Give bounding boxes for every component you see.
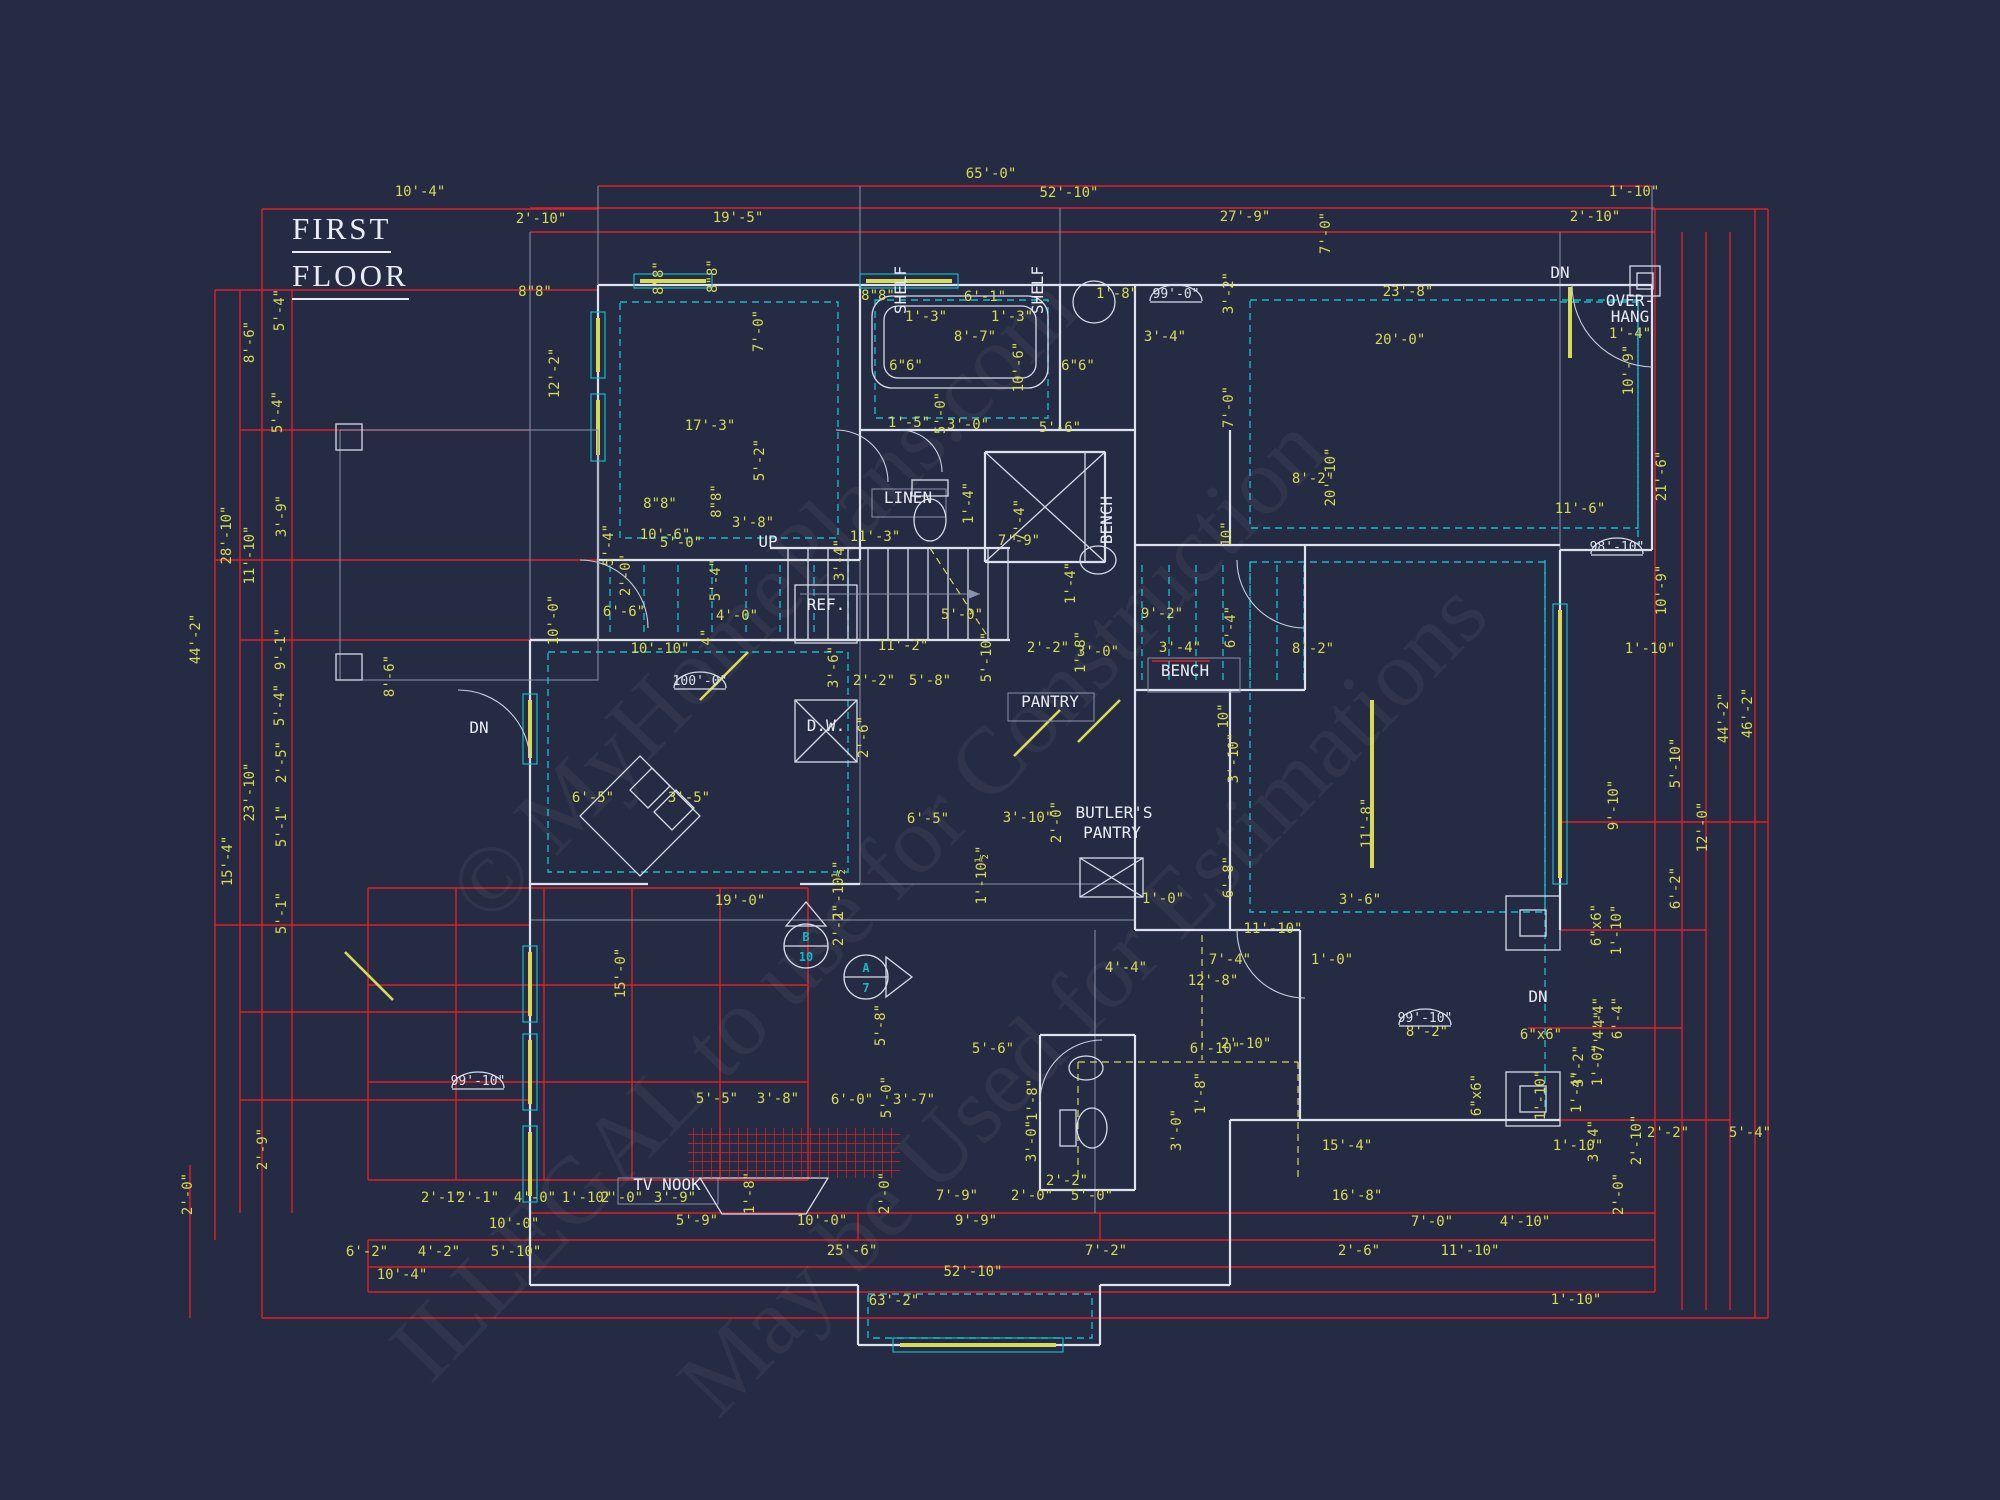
dim-label: 7'-2" [1085,1243,1127,1259]
section-marker-number: 7 [862,981,869,995]
dim-label: 52'-10" [1039,185,1098,201]
dim-label: 1'-4" [1569,1071,1585,1113]
dim-label: 3'-4" [1144,329,1186,345]
dim-label: 8"8" [705,259,721,293]
dim-label: 25'-6" [827,1243,878,1259]
dim-label: 1'-4" [1063,562,1079,604]
dim-label: 8"8" [861,288,895,304]
dim-label: 5'-6" [1039,420,1081,436]
dim-label: 9'-1" [273,628,289,670]
dim-label: 2'-6" [856,716,872,758]
dim-label: 2'-2" [1027,640,1069,656]
dim-label: 10'-4" [395,184,446,200]
dim-label: 6'-8" [1221,856,1237,898]
dim-label: 1'-4" [961,482,977,524]
dim-label: 6'-0" [831,1092,873,1108]
dim-label: 2'-0" [1611,1173,1627,1215]
drawing-title: FIRST FLOOR [292,210,409,304]
fixture-rect [1520,910,1546,936]
dim-label: 11'-6" [1555,501,1606,517]
dim-label: 5'-0" [933,392,949,434]
dim-label: 5'-0" [1071,1188,1113,1204]
dim-label: 1'-10" [1609,184,1660,200]
dim-label: 12'-2" [547,348,563,399]
room-label: PANTRY [1083,823,1141,842]
dim-label: 8"8" [651,261,667,295]
room-label: SHELF [891,266,910,314]
dim-label: 8"8" [709,484,725,518]
dim-label: 11'-10" [1243,921,1302,937]
dim-label: 7'-9" [998,533,1040,549]
dim-label: 6"6" [889,358,923,374]
dim-label: 15'-4" [1322,1138,1373,1154]
room-label: BENCH [1097,496,1116,544]
dim-label: 5'-6" [972,1041,1014,1057]
dim-label: 7'-9" [936,1188,978,1204]
dim-label: 4'-4" [1105,960,1147,976]
level-marker-label: 99'-10" [451,1074,506,1089]
dim-label: 2'-10" [1629,1115,1645,1166]
level-marker-label: 98'-10" [1590,540,1645,555]
dim-label: 2'-10" [1570,209,1621,225]
dim-label: 2'-9" [255,1128,271,1170]
dim-label: 3'-2" [1221,272,1237,314]
dim-label: 1'-10" [1551,1292,1602,1308]
dim-label: 5'-0" [941,607,983,623]
section-marker-number: 10 [799,950,813,964]
dim-label: 3'-0" [1169,1109,1185,1151]
dim-label: 7'-0" [1318,212,1334,254]
dim-label: 7'-0" [751,310,767,352]
dim-label: 4'-2" [418,1244,460,1260]
dim-label: 2'-2" [1046,1173,1088,1189]
dim-label: 3'-9" [274,495,290,537]
dim-label: 2'-1" [457,1190,499,1206]
dim-label: 11'-8" [1359,798,1375,849]
dim-label: 1'-10½" [974,845,990,904]
dim-label: 10" [1216,703,1232,728]
dim-label: 6'-10" [1190,1041,1241,1057]
room-label: LINEN [884,488,932,507]
dim-label: 1'-8" [1025,1079,1041,1121]
dim-label: 19'-5" [713,210,764,226]
dim-label: 1'-0" [1142,891,1184,907]
dim-label: 15'-4" [220,836,236,887]
stair-arrow-head [968,589,980,599]
dim-label: 1'-10" [1533,1070,1549,1121]
dim-label: 12'-0" [1695,802,1711,853]
dim-label: 11'-10" [242,525,258,584]
dim-label: 1'-0" [1311,952,1353,968]
dim-label: 1'-4" [1609,326,1651,342]
room-label: BUTLER'S [1075,803,1152,822]
level-marker-label: 99'-10" [1398,1011,1453,1026]
dim-label: 5'-4" [708,559,724,601]
dim-label: 17'-3" [685,418,736,434]
dim-label: 12'-8" [1188,973,1239,989]
dim-label: 7'-0" [1411,1214,1453,1230]
room-label: DN [469,718,488,737]
dim-label: 1'-5" [888,415,930,431]
dim-label: 3'-10" [1226,733,1242,784]
dim-label: 46'-2" [1740,688,1756,739]
dim-label: 6"x6" [1589,904,1605,946]
section-marker-triangle [886,957,912,997]
section-marker-letter: B [802,930,809,944]
dim-label: 5'-5" [696,1091,738,1107]
dim-label: 10'-4" [377,1267,428,1283]
dim-label: 8'-7" [954,329,996,345]
room-label: REF. [807,595,846,614]
dim-label: 4'-0" [716,608,758,624]
dim-label: 1'-8" [1193,1072,1209,1114]
dim-label: 3'-8" [732,515,774,531]
dim-label: 5'-4" [1729,1125,1771,1141]
dim-label: 10" [1219,521,1235,546]
dim-label: 1'-3" [905,309,947,325]
room-label: UP [758,532,777,551]
dim-label: 9'-2" [1141,606,1183,622]
dim-label: 8"8" [643,496,677,512]
dim-label: 3'-6" [1339,892,1381,908]
dim-label: 5'-10" [491,1244,542,1260]
dim-label: 6'-2" [346,1244,388,1260]
dim-label: 5'-4" [270,391,286,433]
dim-label: 63'-2" [869,1293,920,1309]
dim-label: 6'-6" [603,604,645,620]
dim-label: 6'-2" [1668,867,1684,909]
watermark-text: © MyHomePlans.com [427,254,1096,941]
plumbing-fixture [1077,1108,1107,1148]
fixture-rect [1637,273,1653,289]
dim-label: 10'-9" [1621,345,1637,396]
door-leaf [345,952,393,1000]
dim-label: 4" [699,629,715,646]
dim-label: 3'-8" [757,1091,799,1107]
room-label: SHELF [1028,266,1047,314]
dim-label: 10'-0" [489,1216,540,1232]
dim-label: 8'-2" [1292,641,1334,657]
dim-label: 23'-8" [1383,284,1434,300]
dim-label: 6'-4" [1610,997,1626,1039]
dim-label: 2'-2" [853,673,895,689]
dim-label: 2'-2" [831,904,847,946]
dim-label: 6"6" [1061,358,1095,374]
dim-label: 1'-8" [742,1172,758,1214]
dim-label: 5'-10" [1668,738,1684,789]
dim-label: 6'-1" [964,289,1006,305]
floor-plan-sheet: © MyHomePlans.comILLEGAL to use for Cons… [0,0,2000,1500]
dim-label: 3'-0" [947,417,989,433]
dim-label: 3'-10" [1003,810,1054,826]
dim-label: 4'-4" [1591,997,1607,1039]
dim-label: 3'-5" [668,790,710,806]
dim-label: 8"8" [518,284,552,300]
dim-label: 5'-0" [879,1076,895,1118]
fixture-rect [1060,1110,1076,1146]
dim-label: 10'-6" [640,527,691,543]
dim-label: 6'-5" [907,811,949,827]
dim-label: 5'-9" [676,1213,718,1229]
dim-label: 5'-4" [272,289,288,331]
room-label: BENCH [1161,661,1209,680]
dim-label: 4'-10" [1500,1214,1551,1230]
dim-label: 28'-10" [219,505,235,564]
dim-label: 10'-10" [630,641,689,657]
dim-label: 7'-4" [1209,952,1251,968]
dim-label: 5'-4" [601,524,617,566]
dim-label: 3'-6" [826,646,842,688]
dim-label: 6'-4" [1223,606,1239,648]
dim-label: 1'-8" [1096,286,1138,302]
dim-label: 7'-0" [1221,386,1237,428]
drawing-title-line2: FLOOR [292,257,409,300]
dim-label: 19'-0" [715,893,766,909]
dim-label: 6'-5" [572,790,614,806]
dim-label: 3'-4" [832,539,848,581]
dim-label: 11'-10" [1440,1243,1499,1259]
dim-label: 2'-0" [877,1172,893,1214]
dim-label: 10'-6" [1011,342,1027,393]
dim-label: 6"x6" [1520,1027,1562,1043]
dim-label: 44'-2" [188,614,204,665]
dim-label: 27'-9" [1220,209,1271,225]
level-marker-label: 100'-0" [673,674,728,689]
dim-label: 5'-8" [873,1004,889,1046]
dim-label: 5'-2" [752,439,768,481]
dim-label: 10'-9" [1654,565,1670,616]
dim-label: 6"x6" [1469,1074,1485,1116]
dim-label: 3'-7" [893,1092,935,1108]
dim-label: 1'-10" [1609,905,1625,956]
dim-label: 2'-5" [274,741,290,783]
drawing-title-line1: FIRST [292,210,391,253]
room-label: D.W. [807,716,846,735]
room-label: DN [1550,263,1569,282]
dim-label: 2'-0" [1011,1188,1053,1204]
dim-label: 1'-0" [1590,1044,1606,1086]
section-marker-letter: A [862,961,870,975]
dim-label: 20'-0" [1375,332,1426,348]
dim-label: 23'-10" [242,762,258,821]
dim-label: 3'-0" [1024,1120,1040,1162]
dim-label: 52'-10" [943,1264,1002,1280]
dim-label: 2'-0" [618,554,634,596]
dim-label: 9'-9" [955,1213,997,1229]
dim-label: 4'-0" [514,1190,556,1206]
dim-label: 5'-1" [274,805,290,847]
dim-label: 5'-1" [274,892,290,934]
dim-label: 2'-6" [1338,1243,1380,1259]
dim-label: 1'-3" [991,309,1033,325]
fixture-rect [1506,896,1560,950]
dim-label: 21'-6" [1654,451,1670,502]
room-label: HANG [1611,307,1650,326]
dim-label: 1'-8" [1073,631,1089,673]
dim-label: 8'-6" [242,321,258,363]
dim-label: 44'-2" [1716,693,1732,744]
dim-label: 2'-10" [516,211,567,227]
dim-label: 5'-10" [979,632,995,683]
level-marker-label: 99'-0" [1153,287,1200,302]
door-swing-arc [1237,560,1305,628]
room-label: TV NOOK [633,1175,701,1194]
dim-label: 1'-10" [1553,1138,1604,1154]
dim-label: 5'-4" [272,684,288,726]
dim-label: 5'-8" [909,673,951,689]
dim-label: 10'-0" [546,595,562,646]
dim-label: 16'-8" [1332,1188,1383,1204]
dim-label: 20'-10" [1323,447,1339,506]
room-label: PANTRY [1021,692,1079,711]
dim-label: 9'-10" [1606,780,1622,831]
dim-label: 10'-0" [797,1213,848,1229]
dim-label: 1'-10" [1625,641,1676,657]
dim-label: 65'-0" [966,166,1017,182]
dim-label: 2'-2" [1647,1125,1689,1141]
room-label: DN [1528,987,1547,1006]
dim-label: 2'-0" [180,1173,196,1215]
dim-label: 8'-6" [382,655,398,697]
dim-label: 11'-2" [878,638,929,654]
dim-label: 15'-0" [613,948,629,999]
dim-label: 3'-4" [1159,640,1201,656]
dim-label: 11'-3" [850,529,901,545]
